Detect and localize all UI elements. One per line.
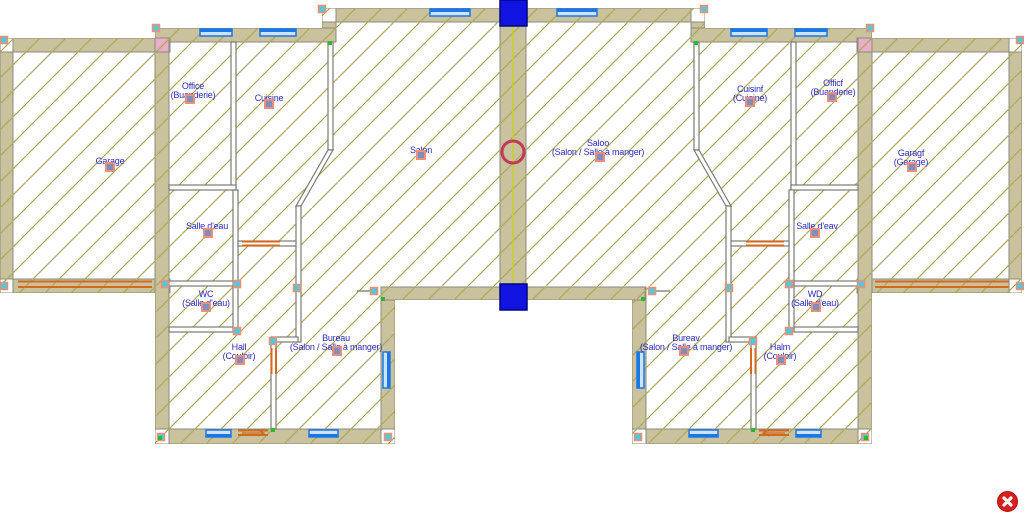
handle [726, 285, 733, 292]
room-marker[interactable] [332, 346, 342, 356]
room-marker[interactable] [264, 99, 274, 109]
handle [1017, 37, 1024, 44]
wall [233, 190, 238, 329]
room-marker[interactable] [235, 355, 245, 365]
room-marker[interactable] [203, 228, 213, 238]
handle [294, 285, 301, 292]
wall [794, 327, 858, 332]
handle [1, 37, 8, 44]
room-marker[interactable] [745, 97, 755, 107]
wall [296, 206, 301, 342]
handle [234, 328, 241, 335]
junction-dot [864, 436, 868, 440]
junction-dot [751, 428, 755, 432]
handle [867, 25, 874, 32]
room-marker[interactable] [679, 346, 689, 356]
floor-plan-editor: GarageOffice(Buanderie)CuisineSalonSalle… [0, 0, 1024, 517]
handle [858, 281, 865, 288]
wall [694, 42, 699, 150]
mirror-endpoint-top[interactable] [500, 0, 527, 26]
wall [794, 281, 858, 286]
wall [789, 190, 794, 329]
floor-hatch [0, 0, 1024, 460]
room-marker[interactable] [811, 302, 821, 312]
handle [649, 288, 656, 295]
handle [635, 434, 642, 441]
handle [270, 338, 277, 345]
room-marker[interactable] [827, 92, 837, 102]
handle [786, 281, 793, 288]
wall [231, 42, 236, 188]
wall [169, 185, 236, 190]
wall [791, 185, 858, 190]
handle [319, 6, 326, 13]
room-marker[interactable] [105, 162, 115, 172]
wall [169, 281, 233, 286]
room-marker[interactable] [416, 150, 426, 160]
plan-canvas[interactable] [0, 0, 1024, 517]
wall [726, 206, 731, 342]
room-marker[interactable] [907, 162, 917, 172]
room-marker[interactable] [185, 94, 195, 104]
close-icon [998, 492, 1017, 511]
junction-dot [694, 41, 698, 45]
junction-dot [381, 297, 385, 301]
room-marker[interactable] [810, 228, 820, 238]
handle [1017, 283, 1024, 290]
handle [385, 434, 392, 441]
room-marker[interactable] [776, 355, 786, 365]
handle [153, 25, 160, 32]
handle [162, 281, 169, 288]
wall [169, 327, 233, 332]
mirror-endpoint-bottom[interactable] [500, 284, 527, 310]
wall [328, 42, 333, 150]
handle [234, 281, 241, 288]
junction-dot [158, 436, 162, 440]
junction-dot [328, 41, 332, 45]
close-button[interactable] [997, 491, 1018, 512]
junction-dot [641, 297, 645, 301]
wall [791, 42, 796, 188]
handle [1, 283, 8, 290]
room-marker[interactable] [595, 152, 605, 162]
handle [786, 328, 793, 335]
handle [371, 288, 378, 295]
room-marker[interactable] [201, 302, 211, 312]
junction-dot [271, 428, 275, 432]
handle [701, 6, 708, 13]
handle [750, 338, 757, 345]
